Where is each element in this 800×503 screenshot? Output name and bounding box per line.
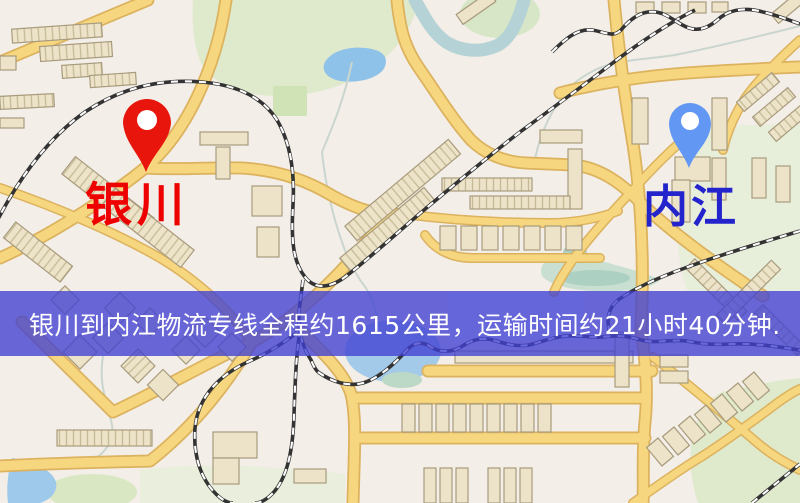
route-info-banner: 银川到内江物流专线全程约1615公里，运输时间约21小时40分钟. — [0, 291, 800, 356]
origin-pin-hole — [137, 110, 157, 130]
destination-label: 内江 — [643, 180, 739, 233]
park-square — [273, 86, 307, 116]
logistics-route-map: 银川 内江 银川到内江物流专线全程约1615公里，运输时间约21小时40分钟. — [0, 0, 800, 503]
route-info-text: 银川到内江物流专线全程约1615公里，运输时间约21小时40分钟. — [29, 306, 781, 342]
map-canvas[interactable]: 银川 内江 — [0, 0, 800, 503]
origin-label: 银川 — [85, 178, 189, 233]
destination-pin-hole — [681, 112, 699, 130]
